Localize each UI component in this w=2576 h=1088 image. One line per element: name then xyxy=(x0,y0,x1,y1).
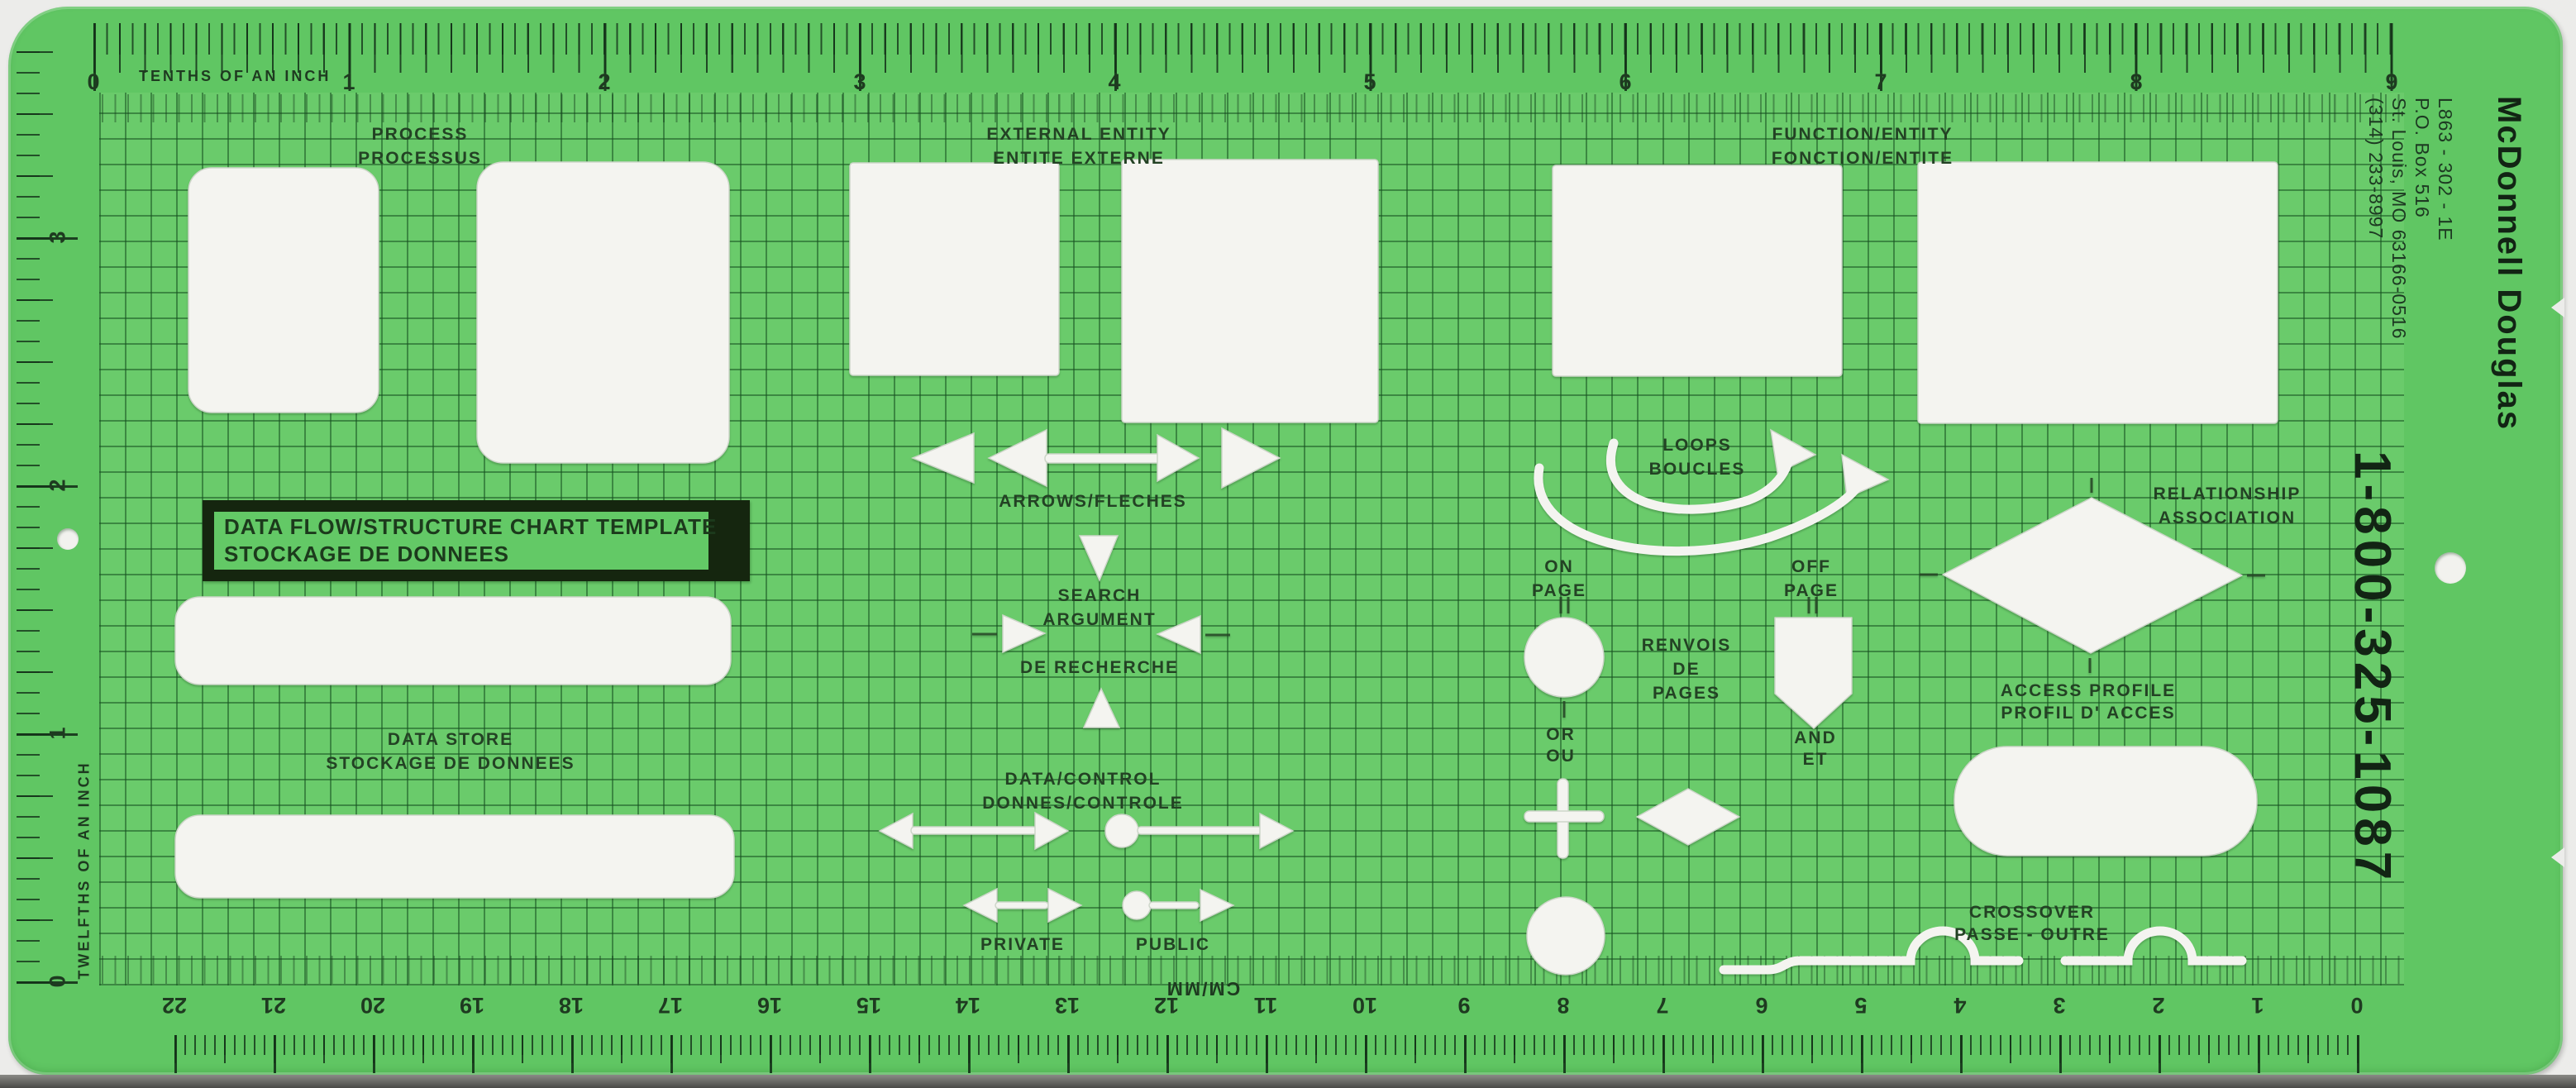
brand-address-block: L863 - 302 - 1E P.O. Box 516 St. Louis, … xyxy=(2364,98,2457,340)
top-ruler-number: 5 xyxy=(1363,69,1376,95)
bottom-ruler-number: 7 xyxy=(1656,992,1668,1018)
bottom-ruler-number: 18 xyxy=(559,992,584,1018)
grid-bottom-subdivision-ticks xyxy=(102,956,2402,984)
process-label: PROCESSPROCESSUS xyxy=(358,122,482,170)
brand-name: McDonnell Douglas xyxy=(2490,96,2528,431)
bottom-ruler-number: 1 xyxy=(2251,992,2264,1018)
top-ruler-number: 0 xyxy=(87,69,99,95)
title-plate-panel: DATA FLOW/STRUCTURE CHART TEMPLATE STOCK… xyxy=(214,512,708,570)
top-ruler-inch-ticks xyxy=(93,23,2400,91)
top-ruler-number: 8 xyxy=(2130,69,2142,95)
bottom-ruler-number: 3 xyxy=(2053,992,2065,1018)
bottom-ruler-number: 19 xyxy=(460,992,484,1018)
title-plate-line2: STOCKAGE DE DONNEES xyxy=(224,541,708,568)
left-ruler-number: 1 xyxy=(45,727,71,739)
bottom-ruler-number: 11 xyxy=(1254,992,1278,1018)
bottom-ruler-number: 4 xyxy=(1953,992,1966,1018)
scanned-stencil-photo: TENTHS OF AN INCH TWELFTHS OF AN INCH CM… xyxy=(0,0,2576,1088)
and-label: ANDET xyxy=(1794,728,1837,771)
grid-top-subdivision-ticks xyxy=(102,94,2402,122)
brand-phone: (314) 233-8997 xyxy=(2364,98,2388,340)
left-ruler-number: 3 xyxy=(45,231,71,243)
bottom-ruler-number: 6 xyxy=(1755,992,1767,1018)
top-ruler-number: 3 xyxy=(853,69,866,95)
bottom-ruler-number: 13 xyxy=(1055,992,1080,1018)
left-ruler-number: 0 xyxy=(45,975,71,987)
bottom-ruler-number: 14 xyxy=(956,992,980,1018)
bottom-ruler-number: 10 xyxy=(1352,992,1377,1018)
left-ruler-inch-ticks xyxy=(17,237,78,985)
top-ruler-number: 6 xyxy=(1619,69,1631,95)
top-ruler-number: 1 xyxy=(342,69,355,95)
search-argument-label-fr: DE RECHERCHE xyxy=(1020,656,1179,680)
left-ruler-number: 2 xyxy=(45,479,71,491)
relationship-label: RELATIONSHIPASSOCIATION xyxy=(2154,482,2302,530)
data-control-label: DATA/CONTROLDONNES/CONTROLE xyxy=(982,767,1184,815)
bottom-ruler-number: 21 xyxy=(261,992,286,1018)
function-entity-label: FUNCTION/ENTITYFONCTION/ENTITE xyxy=(1772,122,1953,170)
bottom-ruler-cm-ticks xyxy=(174,1035,2362,1073)
bottom-ruler-number: 0 xyxy=(2350,992,2363,1018)
private-label: PRIVATE xyxy=(980,933,1065,957)
crossover-label: CROSSOVERPASSE - OUTRE xyxy=(1954,901,2110,946)
brand-part-number: L863 - 302 - 1E xyxy=(2434,98,2457,340)
registration-hole-left xyxy=(57,528,79,550)
brand-po-box: P.O. Box 516 xyxy=(2411,98,2434,340)
scanner-shadow-strip xyxy=(0,1075,2576,1088)
search-argument-label: SEARCHARGUMENT xyxy=(1042,584,1156,632)
top-ruler-caption: TENTHS OF AN INCH xyxy=(139,68,331,85)
bottom-ruler-number: 8 xyxy=(1557,992,1569,1018)
arrows-label: ARROWS/FLECHES xyxy=(999,489,1187,513)
data-store-label: DATA STORESTOCKAGE DE DONNEES xyxy=(326,728,575,775)
brand-city-line: St. Louis, MO 63166-0516 xyxy=(2388,98,2411,340)
off-page-label: OFFPAGE xyxy=(1784,555,1839,603)
bottom-ruler-number: 22 xyxy=(162,992,187,1018)
bottom-ruler-number: 2 xyxy=(2152,992,2164,1018)
bottom-ruler-number: 15 xyxy=(856,992,881,1018)
title-plate: DATA FLOW/STRUCTURE CHART TEMPLATE STOCK… xyxy=(203,500,750,581)
access-profile-label: ACCESS PROFILEPROFIL D' ACCES xyxy=(2001,680,2176,724)
registration-hole-right xyxy=(2435,552,2466,584)
loops-label: LOOPSBOUCLES xyxy=(1649,433,1746,481)
top-ruler-number: 9 xyxy=(2385,69,2397,95)
bottom-ruler-number: 9 xyxy=(1457,992,1470,1018)
bottom-ruler-number: 20 xyxy=(360,992,385,1018)
page-refs-label: RENVOISDEPAGES xyxy=(1642,633,1732,705)
public-label: PUBLIC xyxy=(1136,933,1210,957)
top-ruler-number: 4 xyxy=(1108,69,1120,95)
bottom-ruler-number: 12 xyxy=(1154,992,1179,1018)
brand-tollfree-number: 1-800-325-1087 xyxy=(2341,451,2402,885)
left-ruler-caption: TWELFTHS OF AN INCH xyxy=(76,747,93,995)
top-ruler-number: 7 xyxy=(1874,69,1887,95)
bottom-ruler-number: 5 xyxy=(1854,992,1867,1018)
bottom-ruler-number: 17 xyxy=(658,992,683,1018)
title-plate-line1: DATA FLOW/STRUCTURE CHART TEMPLATE xyxy=(224,513,708,541)
external-entity-label: EXTERNAL ENTITYENTITE EXTERNE xyxy=(986,122,1171,170)
bottom-ruler-number: 16 xyxy=(757,992,782,1018)
on-page-label: ONPAGE xyxy=(1532,555,1586,603)
or-label: OROU xyxy=(1546,724,1576,767)
top-ruler-number: 2 xyxy=(598,69,610,95)
